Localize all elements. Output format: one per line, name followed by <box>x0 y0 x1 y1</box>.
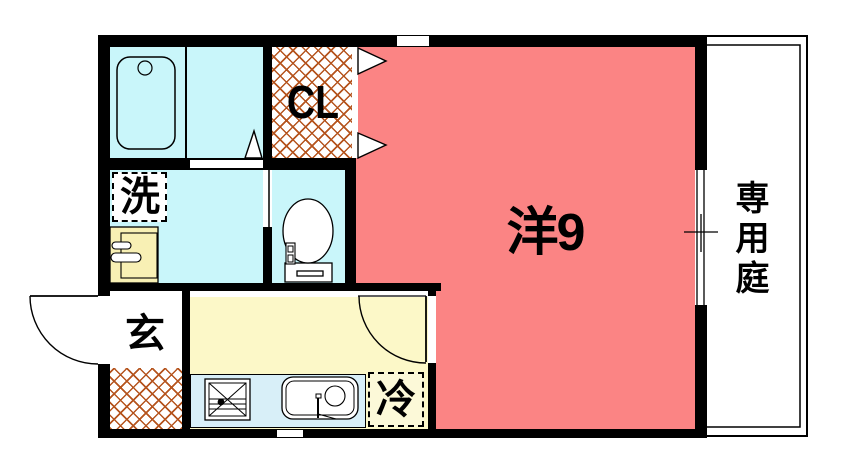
laundry-label: 洗 <box>120 177 160 217</box>
garden-window-opening <box>695 170 707 305</box>
main-room-floor-lower <box>436 283 695 429</box>
entrance-label: 玄 <box>125 314 165 354</box>
wall-left <box>98 35 110 438</box>
top-wall-window-opening <box>397 36 429 46</box>
kitchen-counter <box>190 374 366 428</box>
entrance-door-swing <box>30 296 98 364</box>
bath-door-opening <box>190 160 263 168</box>
wall-toilet-east <box>345 158 356 283</box>
wall-kitchen-north <box>98 283 441 291</box>
closet-door-strip <box>352 47 358 158</box>
entrance-porch-floor <box>110 368 182 429</box>
floorplan-canvas: 洋9 CL 洗 玄 冷 専用庭 <box>0 0 846 474</box>
wall-closet-west <box>263 47 272 158</box>
kitchen-door-opening <box>428 296 436 363</box>
toilet-floor <box>272 170 345 283</box>
hall-floor <box>187 47 263 158</box>
main-room-label: 洋9 <box>507 207 584 259</box>
toilet-door-opening <box>263 170 272 227</box>
garden-label: 専用庭 <box>732 180 766 300</box>
wall-toilet-west <box>263 227 272 283</box>
kitchen-threshold-strip <box>190 291 428 297</box>
bottom-wall-vent-opening <box>277 430 303 437</box>
bathroom-partition-line <box>185 47 187 158</box>
closet-label: CL <box>287 79 339 125</box>
entrance-door-opening <box>98 296 110 364</box>
wall-entrance-east <box>182 291 190 433</box>
refrigerator-label: 冷 <box>376 380 416 420</box>
bathroom-floor <box>110 47 186 158</box>
